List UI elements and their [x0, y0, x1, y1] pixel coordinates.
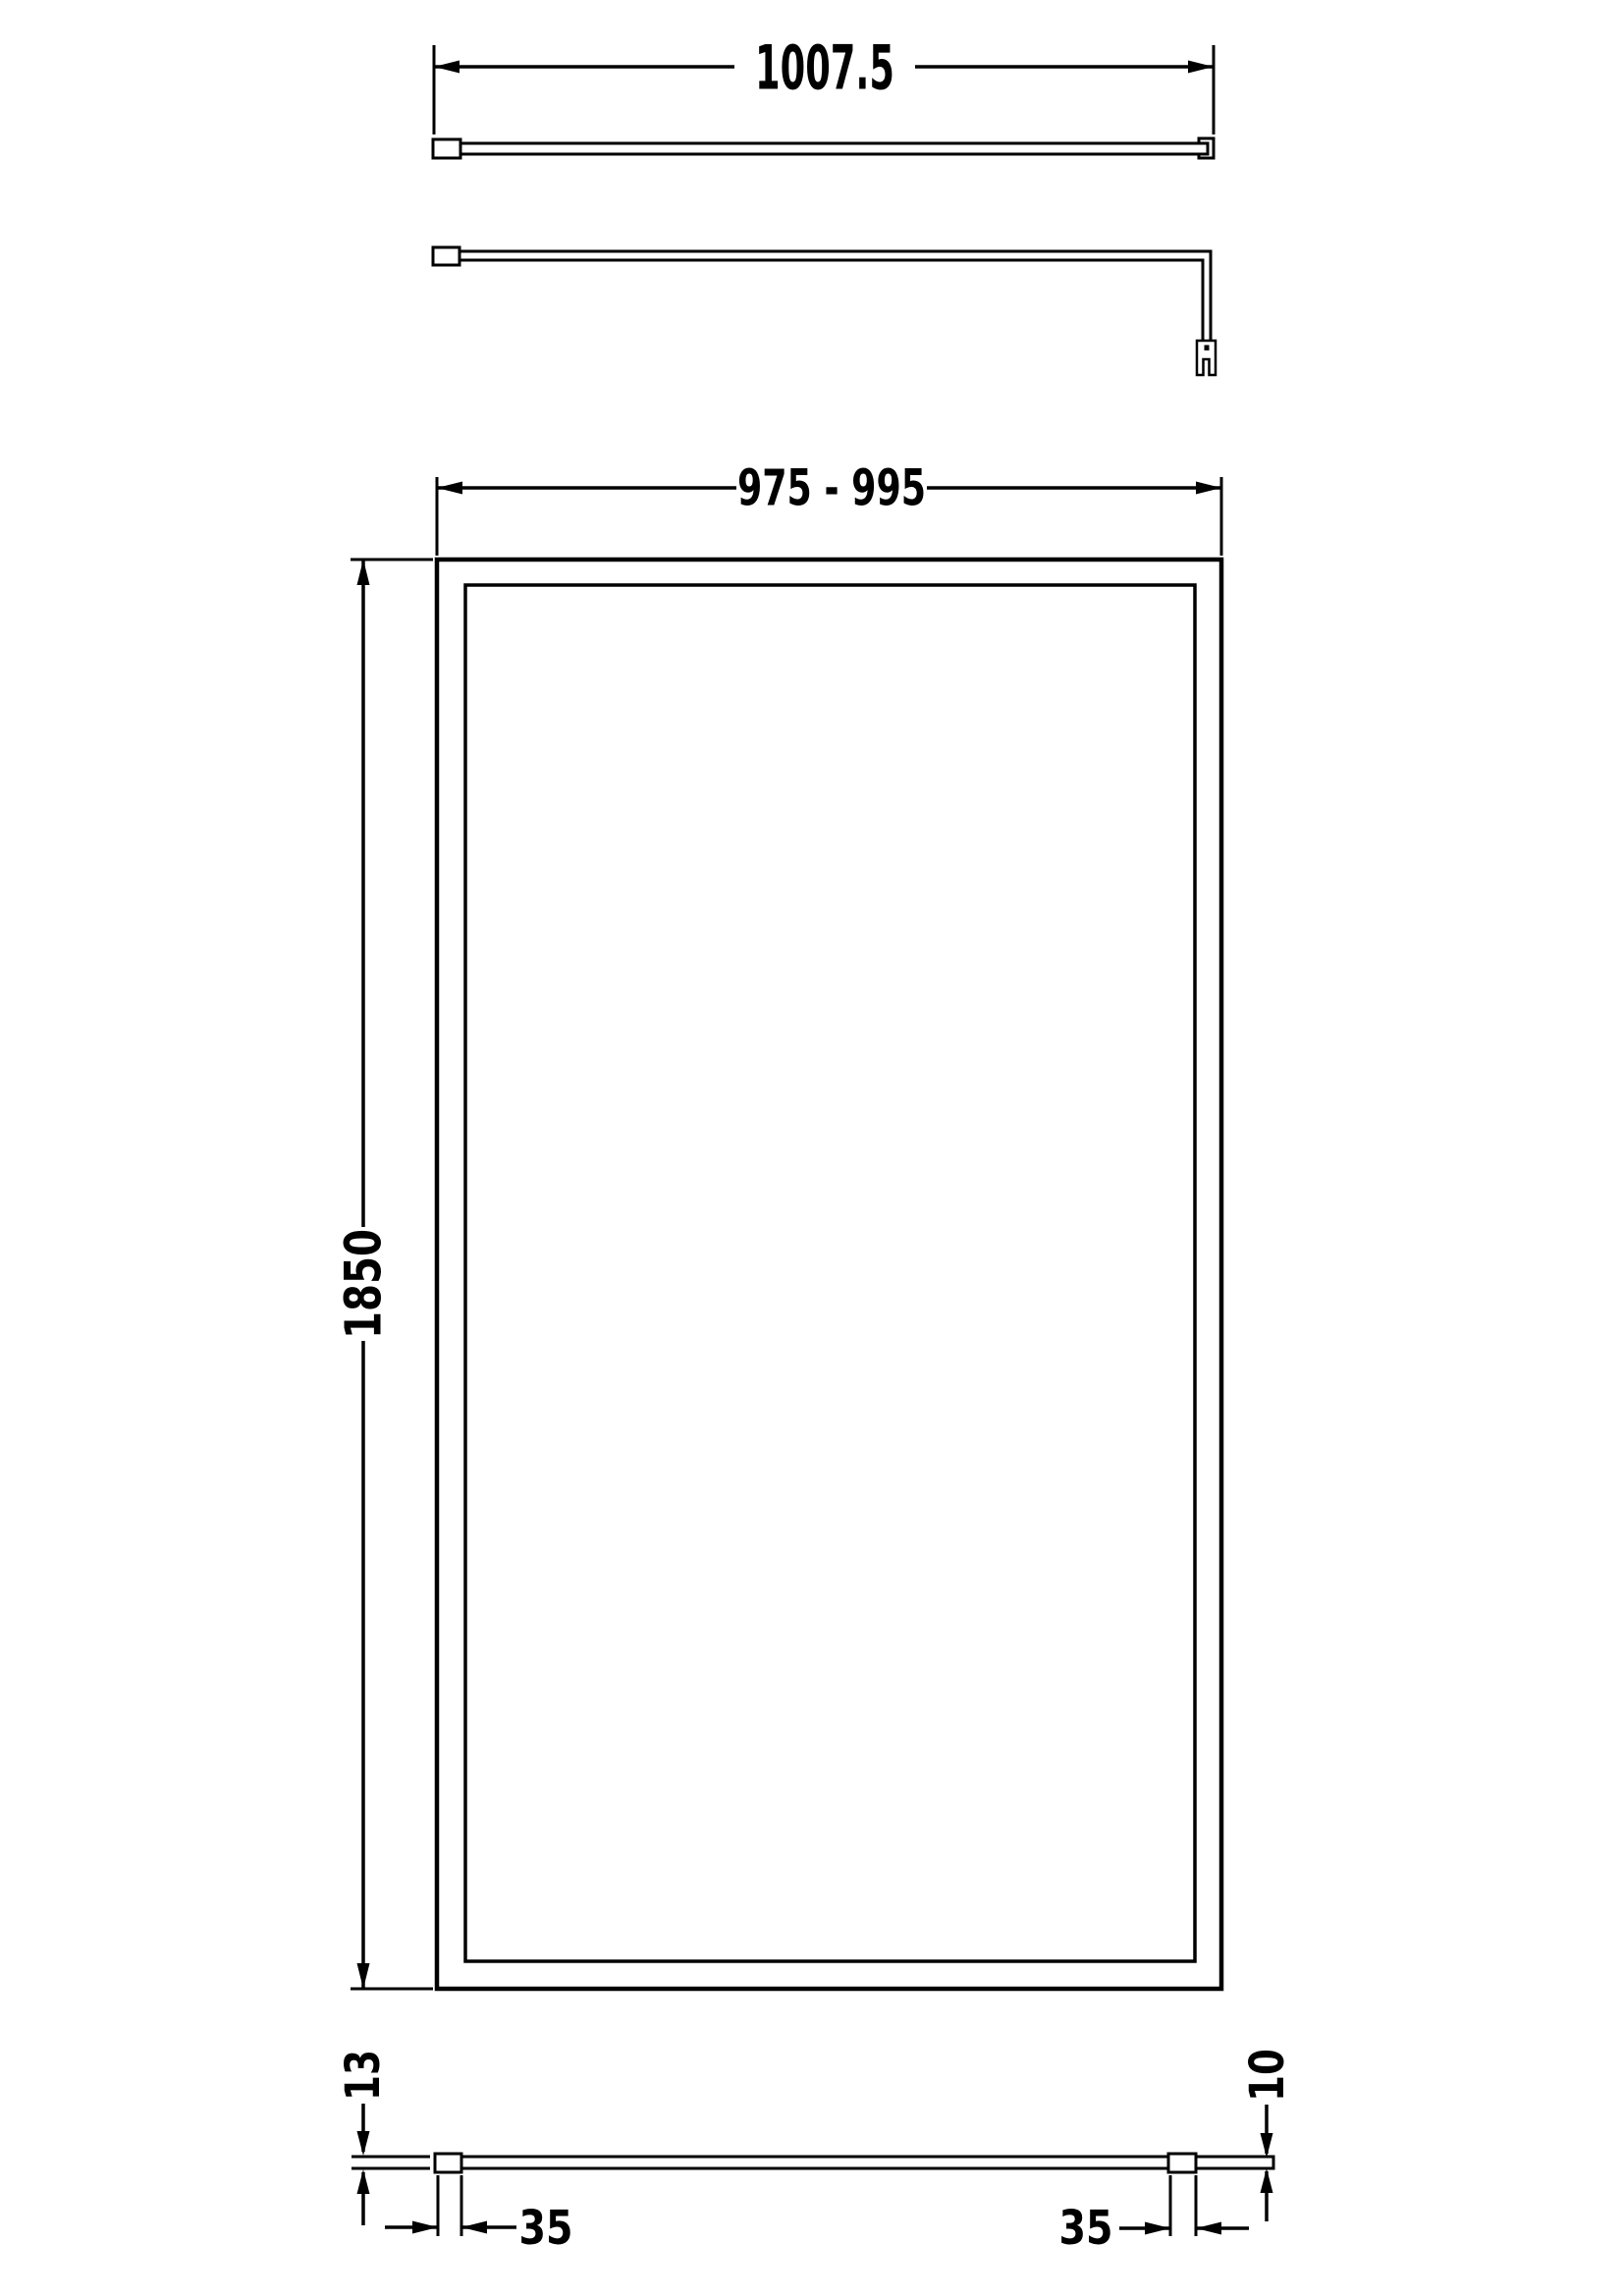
wall-profile-block [435, 2154, 461, 2172]
wall-fixing-block [433, 139, 460, 158]
arrowhead-right [1196, 482, 1221, 495]
arrowhead-left [437, 482, 462, 495]
bar-inner-edge [458, 260, 1203, 341]
drawing-sheet: 1007.5 975 - 995 1850 [0, 0, 1623, 2296]
panel-front-view: 975 - 995 1850 [336, 460, 1222, 1990]
wall-profile-depth-dimension: 13 [336, 2050, 391, 2101]
support-bar [458, 143, 1208, 154]
panel-glass-inner-edge [465, 585, 1195, 1961]
arrowhead-right [1145, 2222, 1170, 2235]
glass-panel-section [435, 2157, 1273, 2168]
arrowhead-right [412, 2221, 438, 2234]
bracket-width-dimension: 35 [1059, 2201, 1113, 2256]
bar-outer-edge [458, 251, 1211, 341]
panel-plan-view: 13 35 10 35 [336, 2049, 1295, 2256]
arrowhead-down [1261, 2133, 1273, 2158]
bar-length-dimension: 1007.5 [755, 32, 894, 104]
end-bracket-block [1168, 2154, 1196, 2172]
arrowhead-left [434, 61, 460, 74]
support-bar-top-view: 1007.5 [433, 32, 1214, 159]
wall-profile-width-dimension: 35 [519, 2201, 573, 2256]
arrowhead-down [357, 2131, 370, 2156]
clamp-screw-dot [1205, 346, 1210, 351]
arrowhead-right [1188, 61, 1214, 74]
panel-outer-frame [437, 560, 1221, 1989]
wall-fixing-block [433, 247, 460, 265]
arrowhead-up [1261, 2168, 1273, 2193]
panel-thickness-dimension: 10 [1240, 2049, 1295, 2102]
panel-height-dimension: 1850 [336, 1229, 394, 1339]
arrowhead-up [357, 2169, 370, 2194]
arrowhead-up [357, 560, 370, 585]
technical-drawing: 1007.5 975 - 995 1850 [0, 0, 1623, 2296]
arrowhead-left [461, 2221, 487, 2234]
support-bar-side-view [433, 247, 1216, 375]
arrowhead-down [357, 1963, 370, 1989]
arrowhead-left [1196, 2222, 1221, 2235]
panel-width-dimension: 975 - 995 [737, 460, 926, 518]
